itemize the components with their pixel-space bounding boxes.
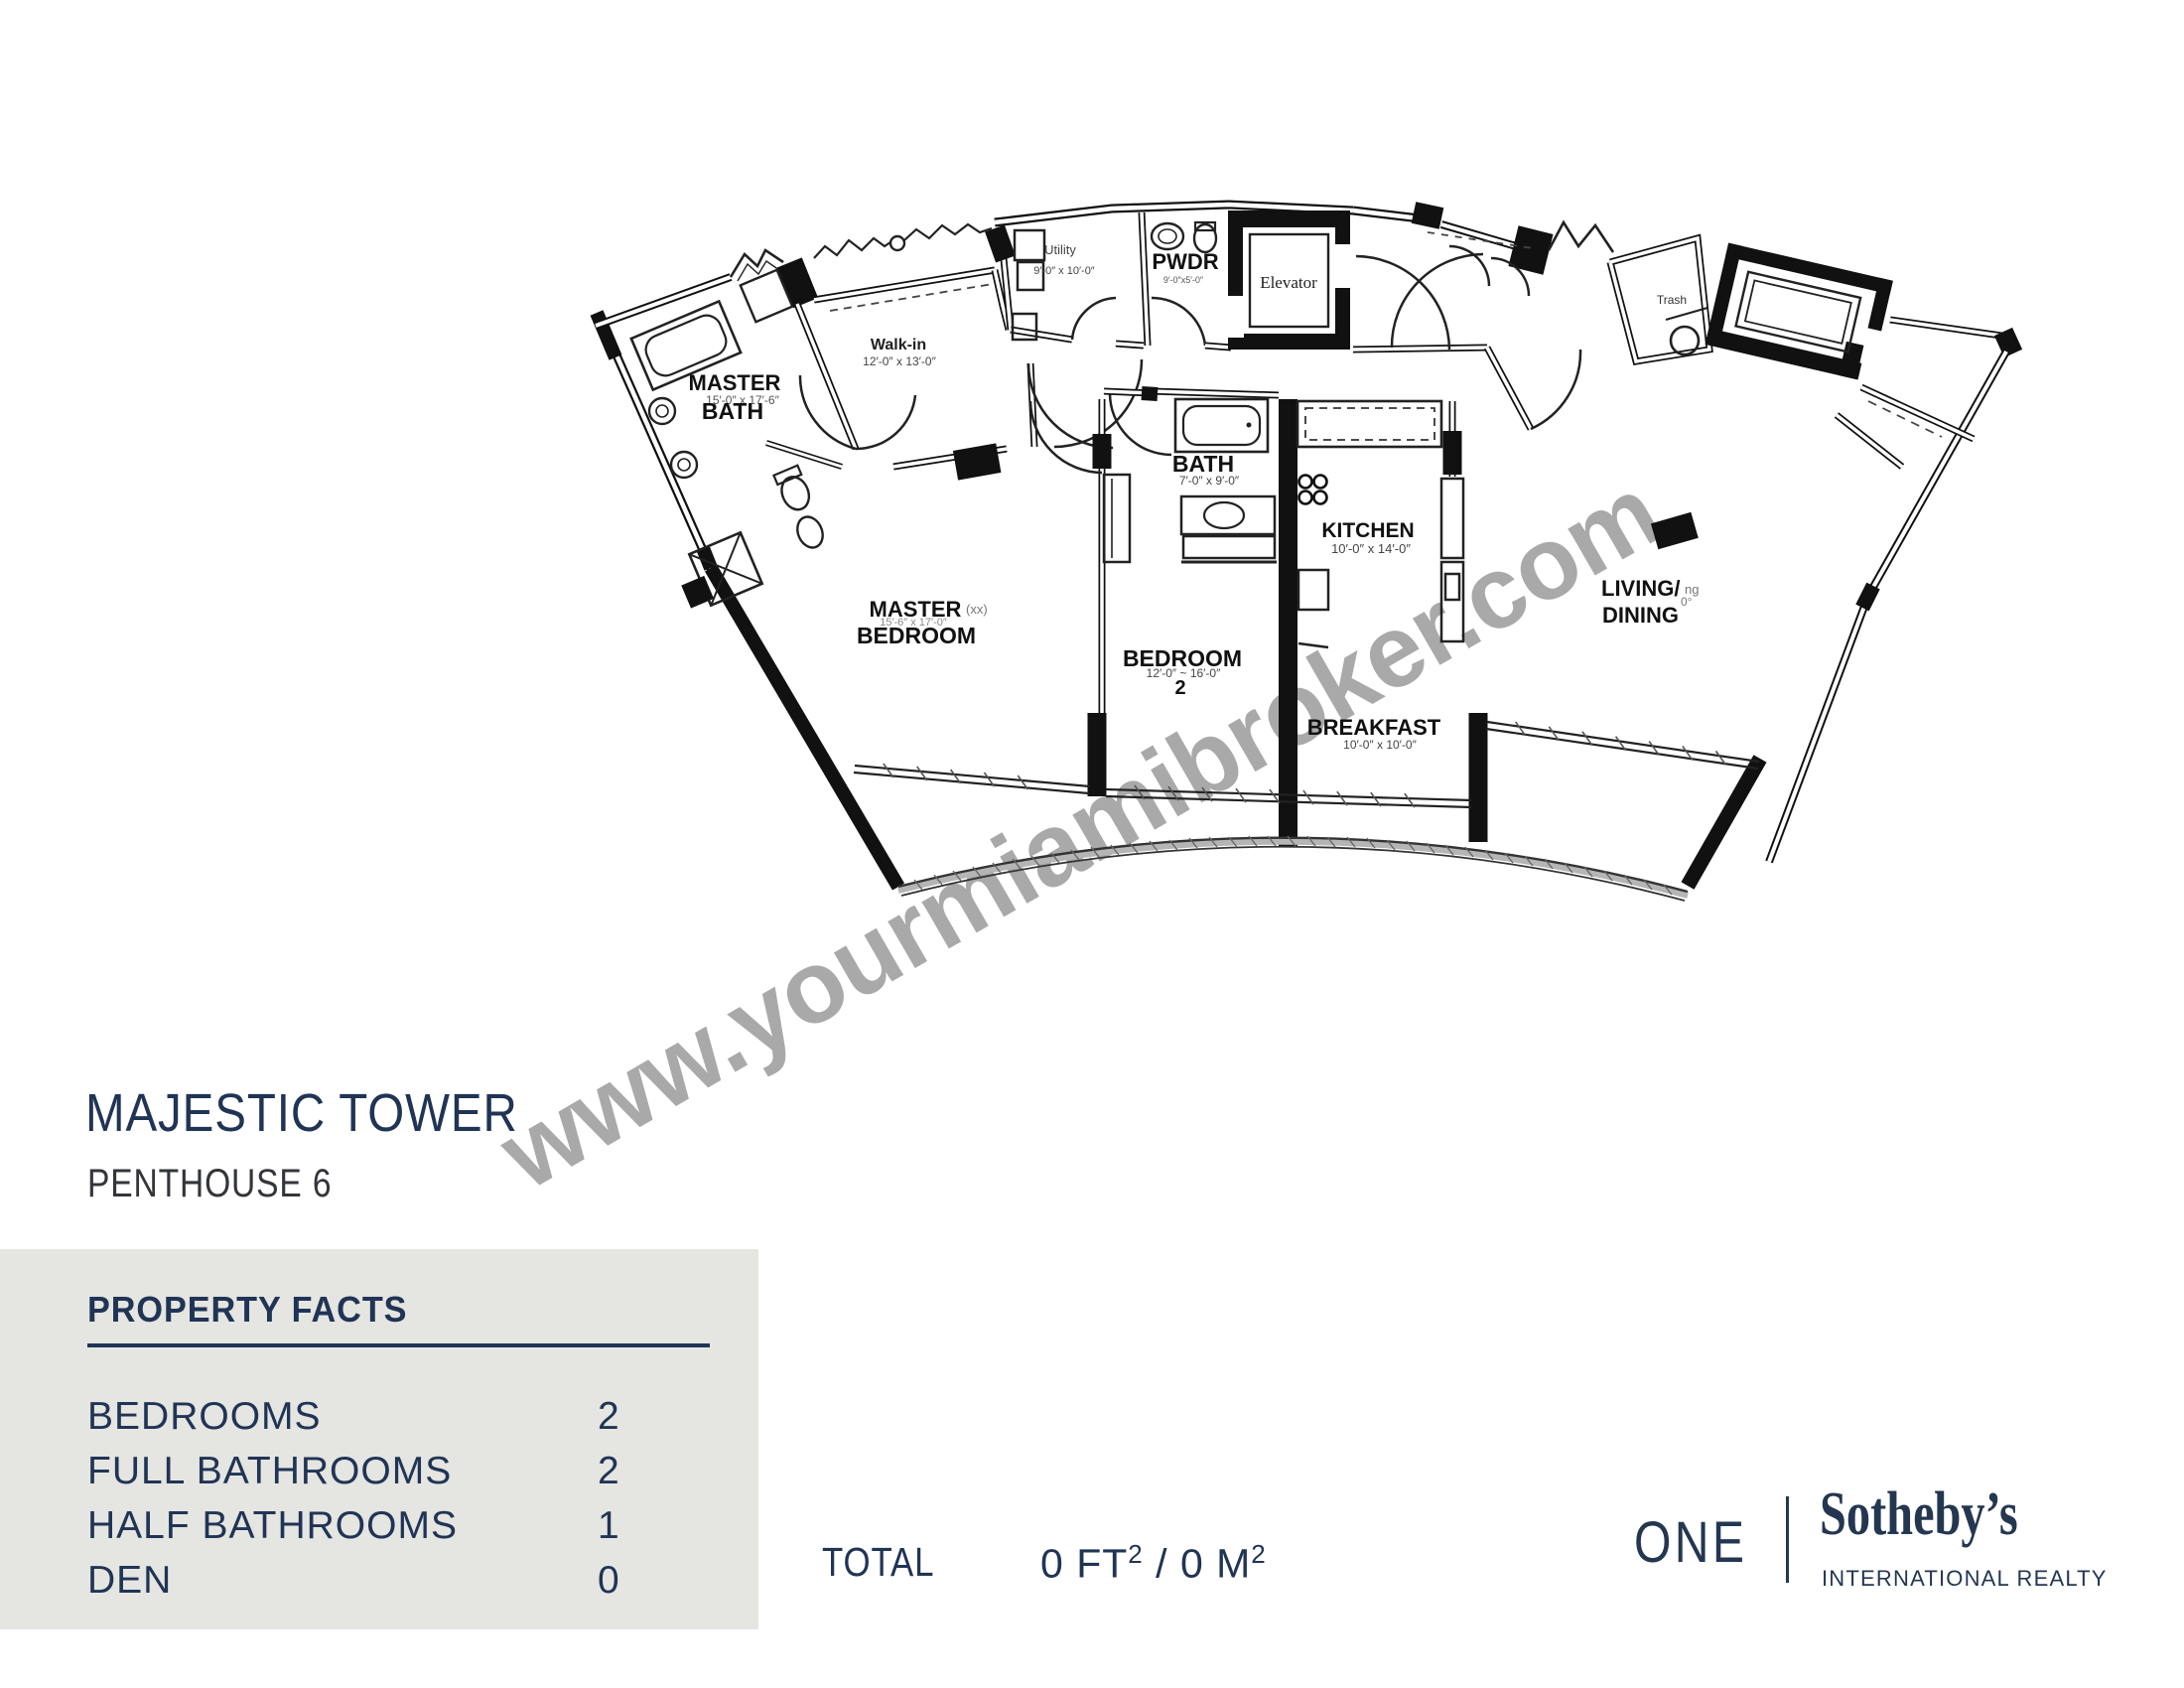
svg-text:MASTER: MASTER	[689, 370, 781, 395]
svg-text:2: 2	[1174, 677, 1185, 699]
svg-text:BREAKFAST: BREAKFAST	[1307, 715, 1441, 740]
svg-text:7′-0″ x 9′-0″: 7′-0″ x 9′-0″	[1179, 474, 1240, 488]
svg-text:12′-0″ x 13′-0″: 12′-0″ x 13′-0″	[863, 354, 936, 368]
svg-text:9′-0″ x 10′-0″: 9′-0″ x 10′-0″	[1033, 265, 1095, 277]
svg-text:Trash: Trash	[1657, 293, 1687, 307]
svg-text:LIVING/: LIVING/	[1601, 576, 1680, 601]
svg-text:0°: 0°	[1681, 595, 1693, 609]
svg-text:10′-0″ x 10′-0″: 10′-0″ x 10′-0″	[1343, 738, 1417, 752]
svg-text:Walk-in: Walk-in	[871, 337, 926, 353]
svg-text:BATH: BATH	[702, 398, 763, 424]
svg-text:KITCHEN: KITCHEN	[1321, 519, 1414, 542]
svg-text:(xx): (xx)	[966, 602, 988, 617]
svg-text:Utility: Utility	[1044, 242, 1076, 257]
svg-text:9′-0″x5′-0″: 9′-0″x5′-0″	[1163, 275, 1204, 285]
svg-text:Elevator: Elevator	[1260, 273, 1317, 292]
svg-text:DINING: DINING	[1602, 603, 1679, 628]
svg-text:BEDROOM: BEDROOM	[857, 623, 976, 648]
svg-text:10′-0″ x 14′-0″: 10′-0″ x 14′-0″	[1331, 541, 1411, 556]
svg-text:PWDR: PWDR	[1152, 249, 1218, 274]
